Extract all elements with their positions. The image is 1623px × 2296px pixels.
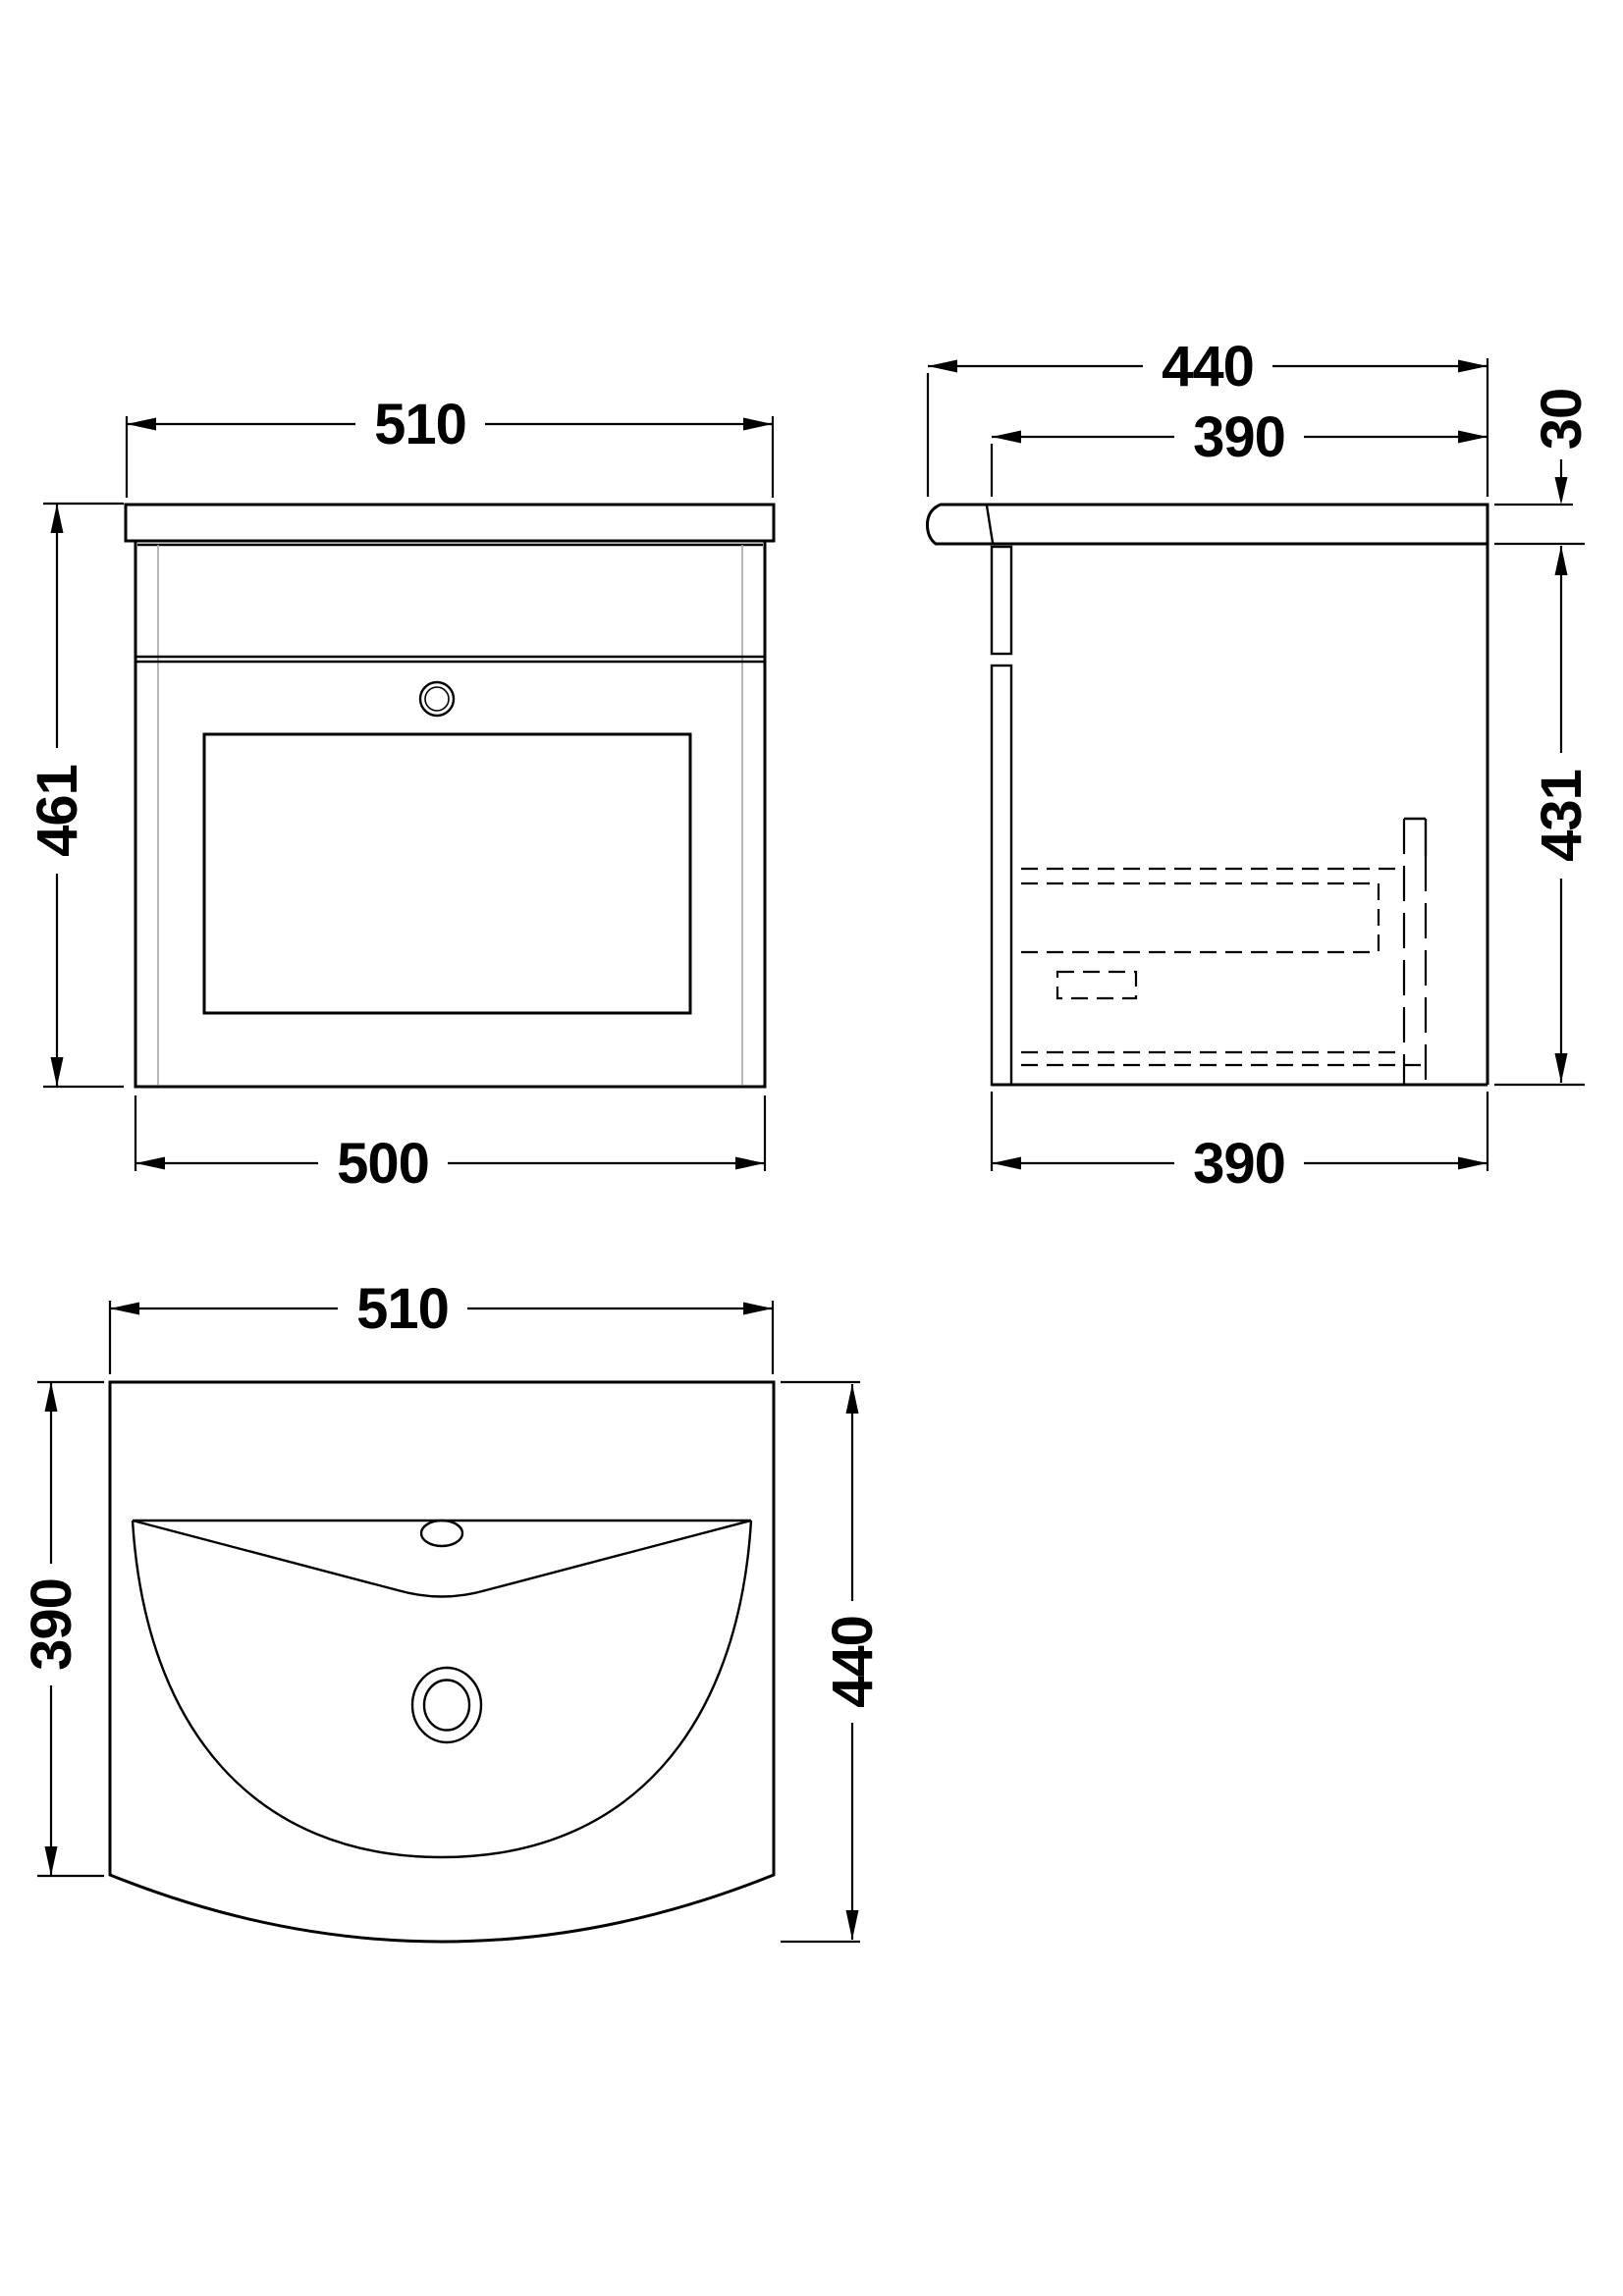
arrow-up-icon: [846, 1384, 859, 1414]
arrow-left-icon: [992, 431, 1021, 444]
side-dim-depth-inner-bottom: 390: [992, 1092, 1488, 1196]
arrow-left-icon: [928, 360, 957, 373]
arrow-down-icon: [45, 1846, 58, 1876]
dim-label: 510: [356, 1277, 449, 1341]
side-dim-depth-inner-top: 390: [992, 405, 1488, 497]
arrow-right-icon: [1458, 431, 1488, 444]
front-view: 510 461 500: [26, 393, 774, 1196]
side-worktop: [927, 505, 1488, 544]
plan-dim-width: 510: [110, 1277, 773, 1374]
dim-label: 390: [1193, 1132, 1285, 1196]
plan-view: 510 390 440: [20, 1277, 885, 1942]
plan-tap-hole: [421, 1521, 462, 1546]
arrow-up-icon: [1555, 546, 1568, 575]
plan-basin-bowl: [133, 1521, 751, 1857]
plan-basin-ledge: [133, 1521, 751, 1597]
front-worktop: [126, 505, 774, 541]
side-hidden-drawer: [1021, 819, 1426, 1085]
front-door-panel: [204, 734, 690, 1013]
side-front-edge-upper: [992, 547, 1011, 654]
side-dim-worktop-thickness: 30: [1494, 389, 1594, 544]
arrow-right-icon: [743, 418, 773, 431]
dim-label: 431: [1530, 770, 1594, 862]
dim-label: 510: [374, 393, 466, 456]
arrow-down-icon: [1555, 1053, 1568, 1083]
plan-dim-depth-left: 390: [20, 1382, 104, 1876]
front-dim-width-top: 510: [127, 393, 773, 498]
dim-label: 390: [20, 1578, 83, 1671]
arrow-down-icon: [1555, 477, 1568, 505]
arrow-up-icon: [45, 1382, 58, 1412]
front-knob-inner: [425, 687, 449, 711]
arrow-right-icon: [743, 1303, 773, 1315]
vanity-dimension-drawing: 510 461 500: [0, 0, 1623, 2296]
arrow-left-icon: [127, 418, 156, 431]
front-dim-height: 461: [26, 504, 124, 1087]
arrow-down-icon: [51, 1057, 64, 1087]
side-dim-cabinet-height: 431: [1494, 546, 1594, 1085]
front-dim-width-bottom: 500: [135, 1095, 765, 1196]
plan-dim-depth-right: 440: [781, 1382, 885, 1942]
hidden-runner-block: [1057, 972, 1136, 998]
side-view: 440 390 30 431: [927, 335, 1594, 1196]
dim-label: 500: [337, 1132, 429, 1196]
arrow-right-icon: [1458, 1157, 1488, 1170]
arrow-right-icon: [735, 1157, 765, 1170]
arrow-down-icon: [846, 1910, 859, 1940]
dim-label: 390: [1193, 405, 1285, 469]
dim-label: 30: [1530, 389, 1594, 451]
arrow-up-icon: [51, 504, 64, 533]
side-front-edge-lower: [992, 666, 1011, 1085]
plan-waste-inner: [424, 1681, 469, 1731]
side-worktop-edge-line: [987, 506, 993, 543]
technical-drawing-page: 510 461 500: [0, 0, 1623, 2296]
dim-label: 440: [821, 1616, 885, 1708]
arrow-left-icon: [135, 1157, 165, 1170]
arrow-left-icon: [992, 1157, 1021, 1170]
arrow-left-icon: [110, 1303, 139, 1315]
dim-label: 461: [26, 765, 89, 857]
dim-label: 440: [1162, 335, 1254, 399]
front-cabinet-body: [135, 541, 765, 1087]
arrow-right-icon: [1458, 360, 1488, 373]
